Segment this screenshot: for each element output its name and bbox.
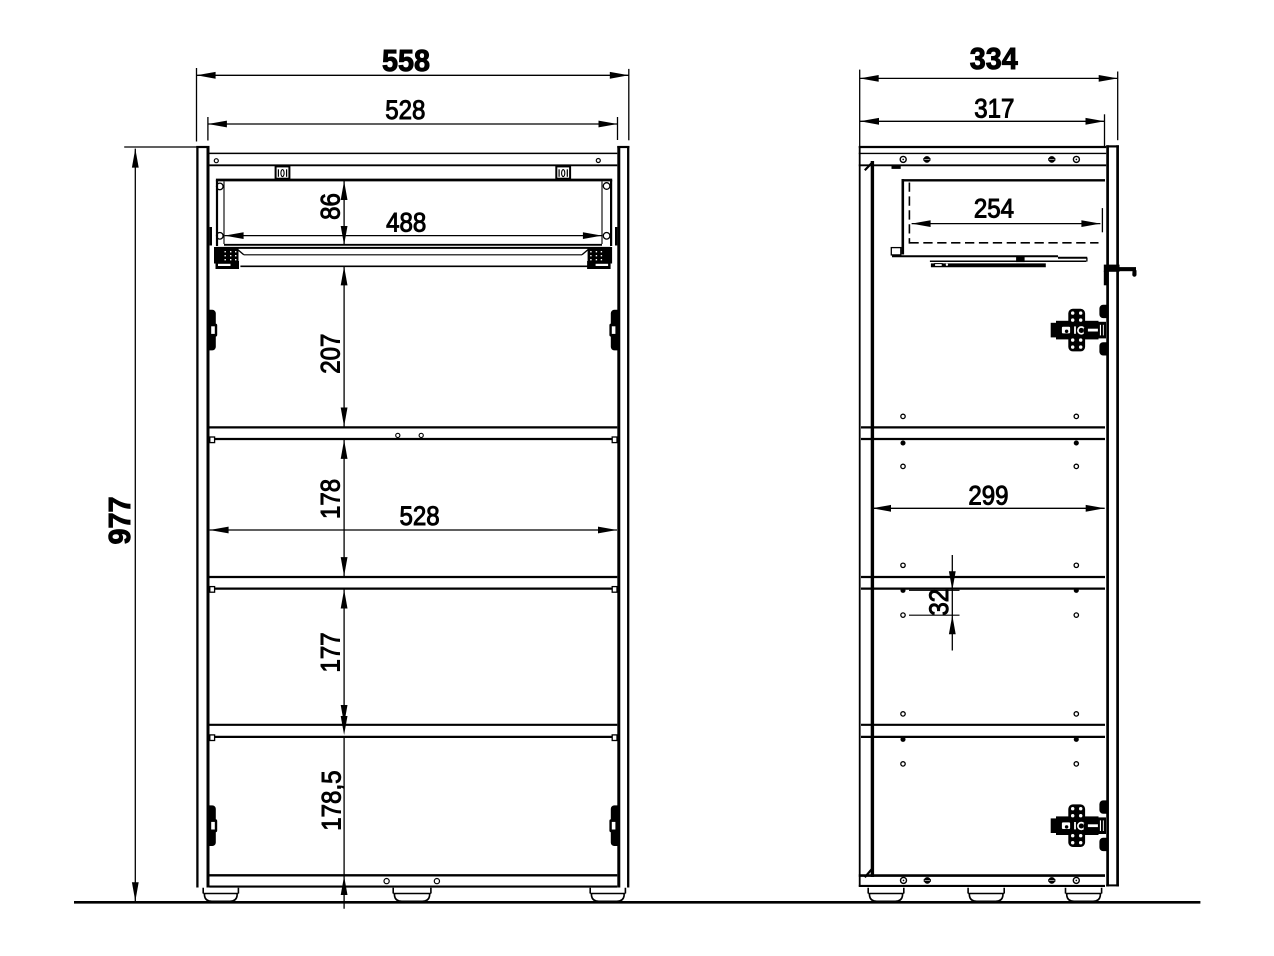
svg-text:207: 207 (316, 334, 346, 374)
svg-text:177: 177 (316, 632, 346, 672)
svg-text:528: 528 (385, 95, 425, 125)
svg-text:299: 299 (968, 480, 1008, 510)
svg-text:528: 528 (400, 501, 440, 531)
svg-text:254: 254 (974, 194, 1014, 224)
svg-text:317: 317 (974, 93, 1014, 123)
svg-text:86: 86 (316, 193, 346, 220)
svg-text:488: 488 (386, 208, 426, 238)
svg-text:977: 977 (102, 497, 137, 545)
svg-text:334: 334 (970, 41, 1019, 76)
svg-text:558: 558 (382, 43, 430, 78)
svg-text:178,5: 178,5 (316, 770, 346, 830)
svg-text:178: 178 (316, 479, 346, 519)
svg-text:32: 32 (924, 589, 954, 616)
